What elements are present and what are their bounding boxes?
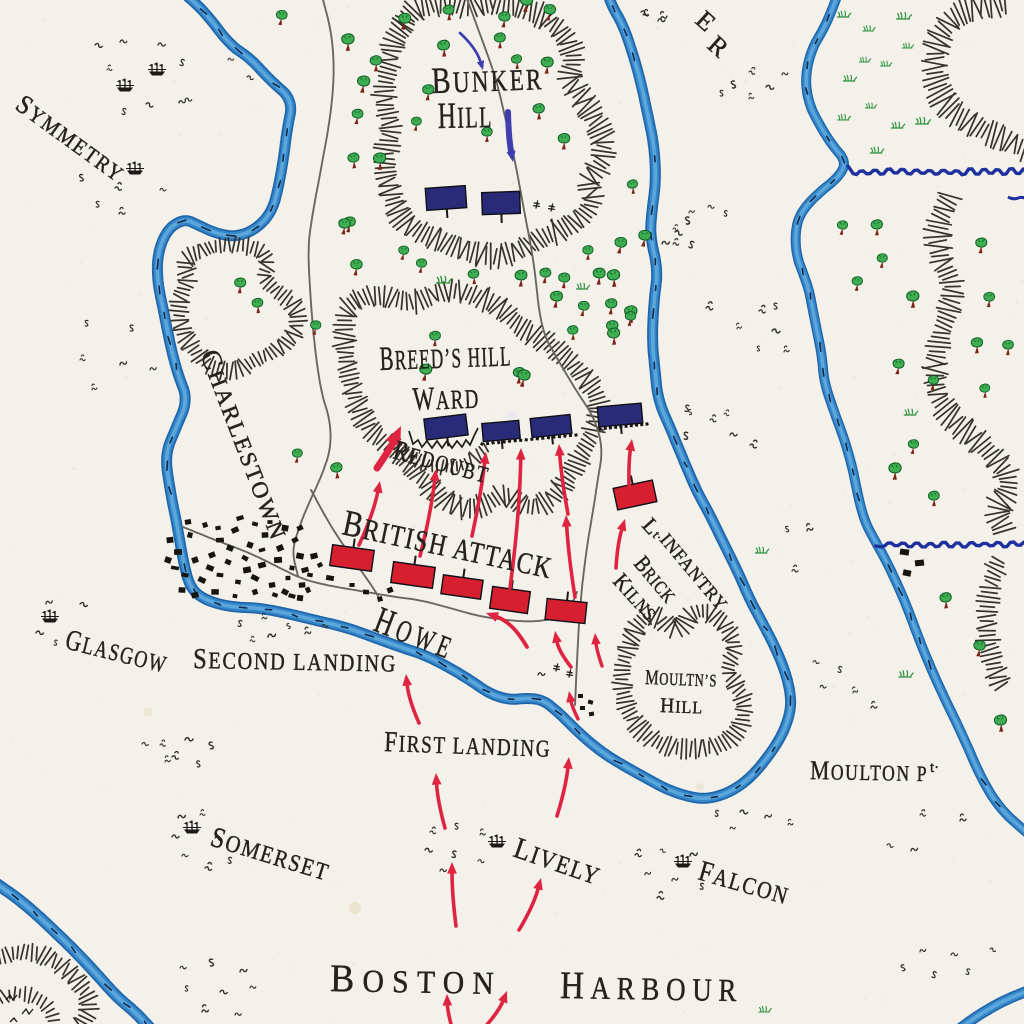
svg-text:t·: t· [930, 760, 939, 776]
svg-text:HILL: HILL [660, 693, 704, 718]
svg-text:HARBOUR: HARBOUR [560, 964, 744, 1010]
svg-text:MOULTON P: MOULTON P [810, 755, 929, 787]
svg-text:WARD: WARD [412, 380, 480, 418]
svg-text:HILL: HILL [437, 95, 493, 137]
svg-text:BOSTON: BOSTON [330, 957, 503, 1003]
